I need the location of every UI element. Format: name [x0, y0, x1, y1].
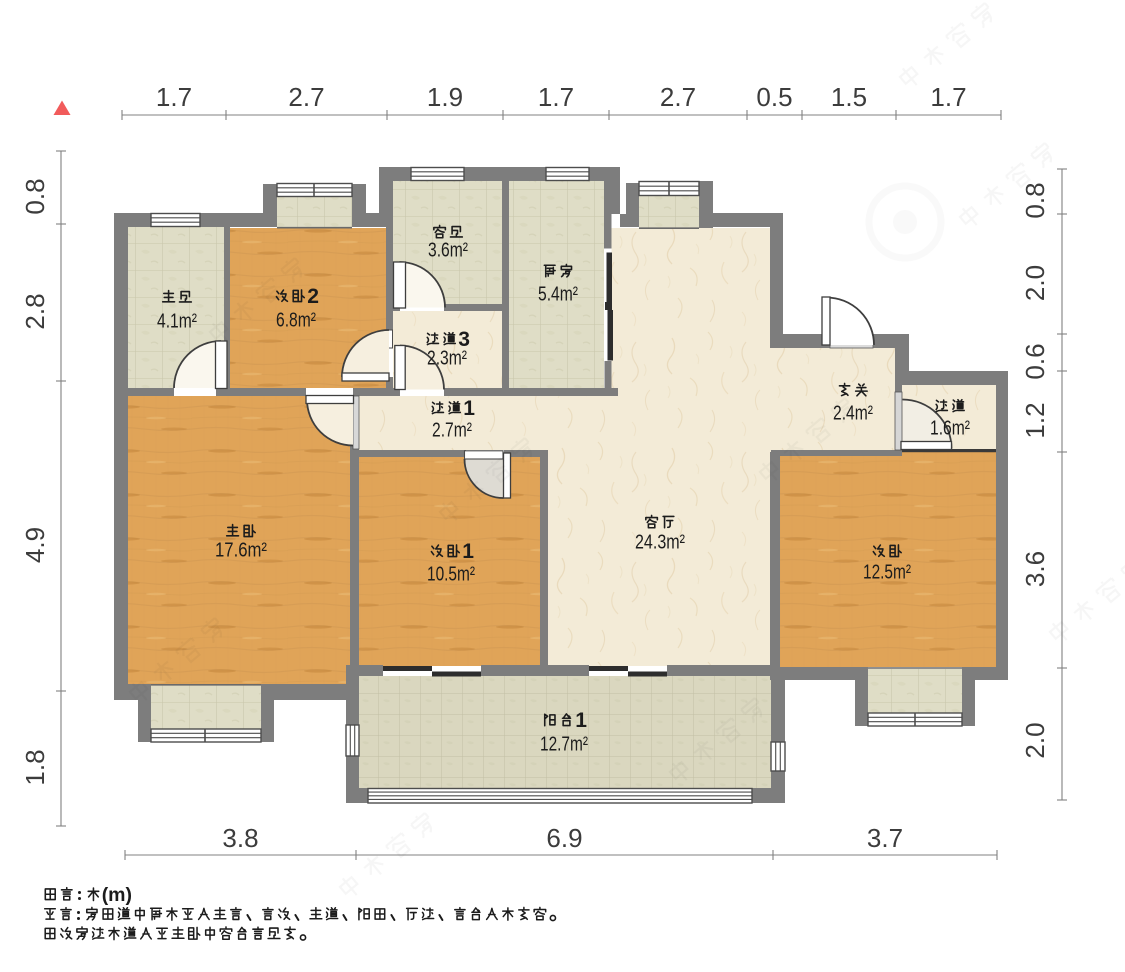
svg-text:1.7: 1.7: [930, 82, 966, 112]
svg-text:0.6: 0.6: [1020, 343, 1050, 379]
svg-text:6.9: 6.9: [546, 823, 582, 853]
svg-text:1: 1: [463, 397, 475, 420]
svg-text:2.3m²: 2.3m²: [427, 346, 467, 369]
svg-text:1.8: 1.8: [20, 749, 50, 785]
svg-text:6.8m²: 6.8m²: [276, 308, 316, 331]
svg-text:10.5m²: 10.5m²: [427, 562, 475, 585]
svg-text:(m): (m): [102, 884, 132, 906]
svg-text:1.7: 1.7: [538, 82, 574, 112]
svg-text:2.0: 2.0: [1020, 722, 1050, 758]
svg-text:1.9: 1.9: [427, 82, 463, 112]
svg-text:4.9: 4.9: [20, 527, 50, 563]
svg-text:12.7m²: 12.7m²: [540, 732, 588, 755]
svg-text:3.7: 3.7: [867, 823, 903, 853]
svg-text:1: 1: [462, 540, 474, 563]
svg-text:0.5: 0.5: [756, 82, 792, 112]
svg-text:3.6: 3.6: [1020, 551, 1050, 587]
svg-text:0.8: 0.8: [1020, 182, 1050, 218]
svg-text:2.8: 2.8: [20, 293, 50, 329]
svg-text:1.5: 1.5: [831, 82, 867, 112]
svg-text:1.7: 1.7: [156, 82, 192, 112]
svg-text:2.7: 2.7: [288, 82, 324, 112]
svg-text:24.3m²: 24.3m²: [635, 530, 685, 553]
svg-text:17.6m²: 17.6m²: [215, 538, 267, 561]
svg-text:0.8: 0.8: [20, 178, 50, 214]
svg-text:12.5m²: 12.5m²: [863, 560, 911, 583]
svg-text:2: 2: [307, 285, 319, 308]
svg-text:1.6m²: 1.6m²: [930, 416, 970, 439]
svg-text:4.1m²: 4.1m²: [157, 309, 197, 332]
svg-text:2.7m²: 2.7m²: [432, 418, 472, 441]
svg-text:3.8: 3.8: [222, 823, 258, 853]
svg-text:1: 1: [575, 709, 587, 732]
svg-text:2.4m²: 2.4m²: [833, 401, 873, 424]
svg-text:1.2: 1.2: [1020, 402, 1050, 438]
svg-text:5.4m²: 5.4m²: [538, 282, 578, 305]
svg-text:3.6m²: 3.6m²: [428, 238, 468, 261]
svg-text:2.7: 2.7: [660, 82, 696, 112]
svg-text:2.0: 2.0: [1020, 265, 1050, 301]
